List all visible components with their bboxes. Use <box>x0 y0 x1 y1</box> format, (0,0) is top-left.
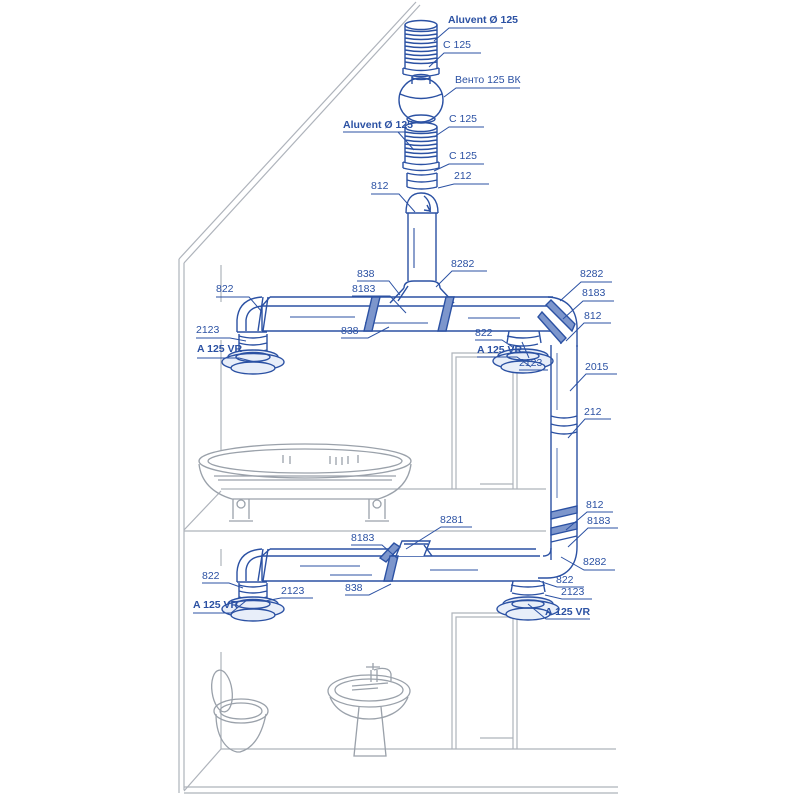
label-8281-lower-tee: 8281 <box>440 515 463 526</box>
label-822-lower-left: 822 <box>202 571 220 582</box>
label-a125vr-lower-right: A 125 VR <box>545 607 590 618</box>
connector-212-top <box>407 173 437 189</box>
tee-8281-lower <box>380 541 432 581</box>
bathtub-foot-right <box>365 499 389 521</box>
label-8183-lower-right: 8183 <box>587 516 610 527</box>
label-822-upper-left: 822 <box>216 284 234 295</box>
label-vento-fan: Венто 125 ВК <box>455 75 521 86</box>
pipe-812-top <box>406 193 438 281</box>
label-212-right: 212 <box>584 407 602 418</box>
bend-8282-upper <box>390 281 454 303</box>
label-a125vr-lower-left: A 125 VR <box>193 600 238 611</box>
label-2015-right: 2015 <box>585 362 608 373</box>
door-frame-second-floor <box>452 353 517 489</box>
upper-duct-run <box>262 297 553 331</box>
left-wall <box>179 259 184 793</box>
label-c125-mid: C 125 <box>449 114 477 125</box>
second-floor-lines <box>184 265 546 531</box>
label-812-lower-right: 812 <box>586 500 604 511</box>
door-frame-first-floor <box>452 613 517 749</box>
label-2123-lower-right: 2123 <box>561 587 584 598</box>
label-a125vr-mid: A 125 VR <box>477 345 522 356</box>
label-c125-low: C 125 <box>449 151 477 162</box>
label-2123-mid: 2123 <box>519 358 542 369</box>
corrugated-pipe-top <box>403 21 439 77</box>
label-8183-right-top: 8183 <box>582 288 605 299</box>
label-212-top: 212 <box>454 171 472 182</box>
label-a125vr-upper-left: A 125 VR <box>197 344 242 355</box>
label-822-mid: 822 <box>475 328 493 339</box>
label-838-upper-top: 838 <box>357 269 375 280</box>
clamp-838-upper <box>364 297 454 331</box>
right-riser <box>538 345 577 578</box>
label-c125-top: C 125 <box>443 40 471 51</box>
roof-fan-vento <box>399 75 443 124</box>
label-8183-upper-tee: 8183 <box>352 284 375 295</box>
corner-8282-upper-right <box>538 297 577 347</box>
bathtub-foot-left <box>229 499 253 521</box>
label-8282-lower-right: 8282 <box>583 557 606 568</box>
label-822-lower-right: 822 <box>556 575 574 586</box>
label-aluvent-top: Aluvent Ø 125 <box>448 15 518 26</box>
label-2123-lower-left: 2123 <box>281 586 304 597</box>
label-8183-lower-tee: 8183 <box>351 533 374 544</box>
label-812-top: 812 <box>371 181 389 192</box>
toilet-icon <box>209 669 268 752</box>
pedestal-sink-icon <box>328 663 410 756</box>
label-8282-upper-center: 8282 <box>451 259 474 270</box>
label-838-upper-bottom: 838 <box>341 326 359 337</box>
diagram-canvas: Aluvent Ø 125 C 125 Венто 125 ВК C 125 A… <box>0 0 800 800</box>
label-aluvent-mid: Aluvent Ø 125 <box>343 120 413 131</box>
connector-212-right <box>551 416 577 434</box>
label-2123-upper-left: 2123 <box>196 325 219 336</box>
bathtub-icon <box>199 444 411 521</box>
label-812-right: 812 <box>584 311 602 322</box>
label-838-lower-run: 838 <box>345 583 363 594</box>
elbow-822-upper-left <box>237 297 268 332</box>
label-8282-right-top: 8282 <box>580 269 603 280</box>
